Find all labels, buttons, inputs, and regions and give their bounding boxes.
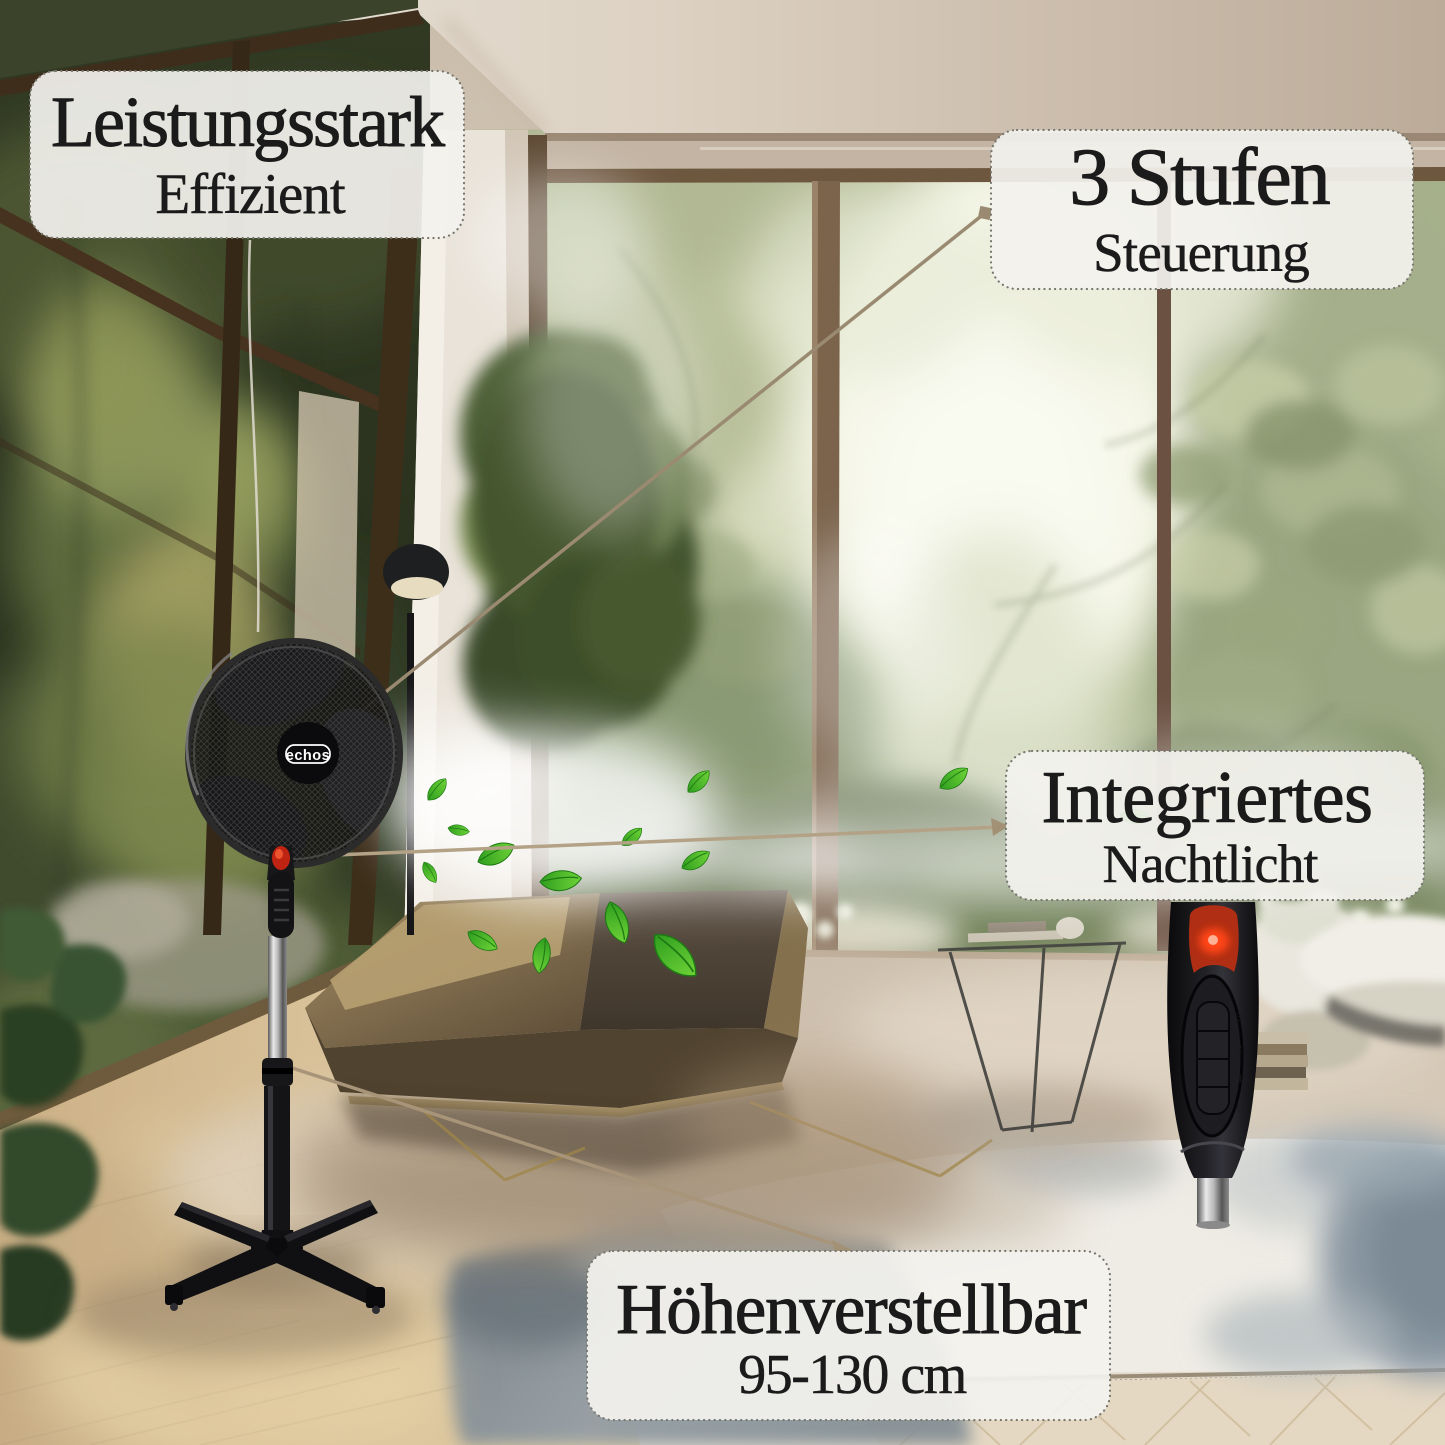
svg-text:Integriertes: Integriertes [1042, 757, 1373, 839]
svg-text:3: 3 [1236, 1010, 1242, 1024]
svg-text:95-130 cm: 95-130 cm [738, 1344, 967, 1406]
svg-text:Steuerung: Steuerung [1093, 222, 1309, 283]
svg-text:Nachtlicht: Nachtlicht [1103, 834, 1319, 894]
svg-text:Leistungsstark: Leistungsstark [51, 82, 445, 162]
svg-text:2: 2 [1236, 1041, 1242, 1055]
svg-text:0: 0 [1237, 1101, 1243, 1115]
svg-text:3 Stufen: 3 Stufen [1069, 131, 1330, 222]
svg-text:Effizient: Effizient [155, 163, 346, 226]
svg-text:1: 1 [1237, 1071, 1243, 1085]
svg-text:echos: echos [286, 748, 330, 764]
svg-text:Höhenverstellbar: Höhenverstellbar [616, 1271, 1087, 1349]
